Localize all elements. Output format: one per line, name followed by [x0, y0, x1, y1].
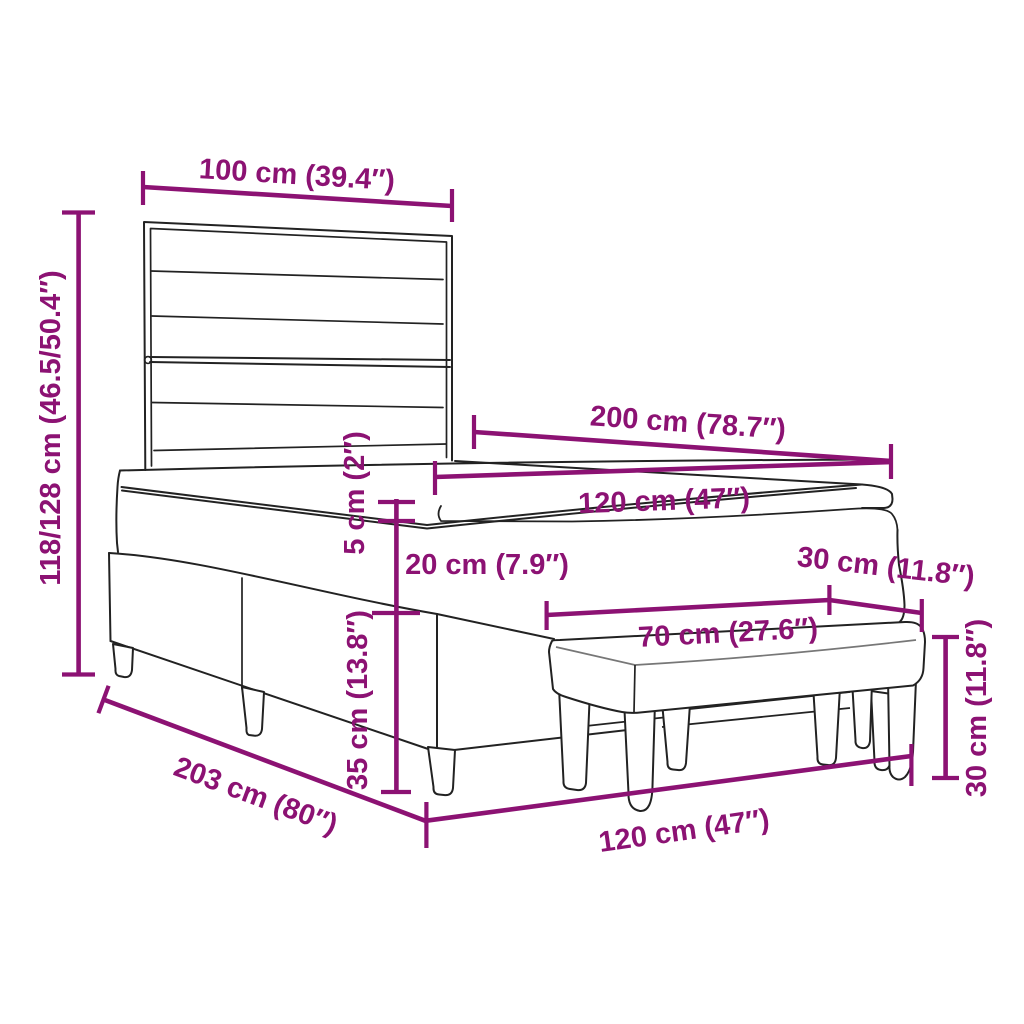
svg-text:118/128 cm (46.5/50.4″): 118/128 cm (46.5/50.4″): [35, 270, 67, 585]
svg-text:120 cm (47″): 120 cm (47″): [578, 482, 751, 520]
svg-text:30 cm (11.8″): 30 cm (11.8″): [961, 619, 993, 797]
svg-text:20 cm (7.9″): 20 cm (7.9″): [405, 549, 569, 581]
svg-text:5 cm (2″): 5 cm (2″): [339, 431, 371, 555]
svg-text:35 cm (13.8″): 35 cm (13.8″): [342, 610, 374, 790]
